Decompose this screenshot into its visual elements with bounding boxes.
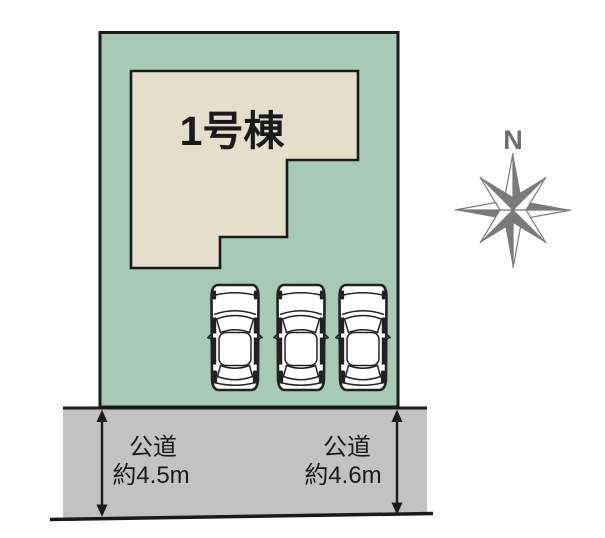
road-width-right: 約4.6m bbox=[304, 462, 381, 489]
road-width-left: 約4.5m bbox=[112, 462, 189, 489]
car-icon bbox=[336, 285, 390, 390]
parking-cars bbox=[208, 285, 390, 390]
building-label: 1号棟 bbox=[180, 108, 286, 154]
site-plan-canvas: 公道 約4.5m 公道 約4.6m 1号棟 bbox=[0, 0, 605, 538]
car-icon bbox=[274, 285, 328, 390]
road-name-left: 公道 bbox=[129, 434, 177, 461]
road-name-right: 公道 bbox=[323, 434, 371, 461]
compass-rose: N bbox=[455, 125, 571, 268]
site-plan: 公道 約4.5m 公道 約4.6m 1号棟 bbox=[0, 0, 605, 538]
north-label: N bbox=[503, 125, 523, 155]
road: 公道 約4.5m 公道 約4.6m bbox=[50, 407, 433, 520]
car-icon bbox=[208, 285, 262, 390]
